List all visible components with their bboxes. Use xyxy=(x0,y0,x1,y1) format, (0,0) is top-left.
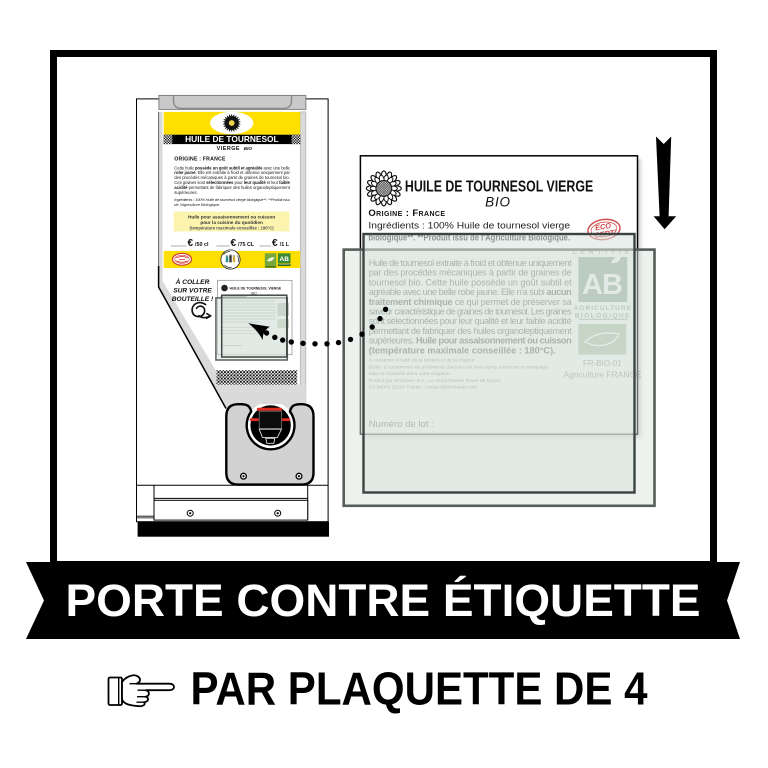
svg-text:/75 CL: /75 CL xyxy=(238,242,255,248)
svg-text:HUILE DE TOURNESOL VIERGE: HUILE DE TOURNESOL VIERGE xyxy=(405,179,593,196)
svg-text:Ingrédients : 100% Huile de to: Ingrédients : 100% Huile de tournesol vi… xyxy=(368,221,570,231)
svg-text:ORIGINE : FRANCE: ORIGINE : FRANCE xyxy=(174,157,226,163)
svg-text:de l'Agriculture Biologique.: de l'Agriculture Biologique. xyxy=(174,202,220,207)
svg-text:AB: AB xyxy=(280,256,290,263)
svg-text:/1 L: /1 L xyxy=(280,242,290,248)
svg-text:VIERGE: VIERGE xyxy=(217,146,240,152)
svg-text:Huile pour assaisonnement ou c: Huile pour assaisonnement ou cuisson xyxy=(188,215,275,220)
svg-text:supérieures.: supérieures. xyxy=(174,190,197,195)
svg-text:Origine : France: Origine : France xyxy=(368,208,445,219)
svg-text:BOUTEILLE !: BOUTEILLE ! xyxy=(172,296,214,303)
svg-text:SUR VOTRE: SUR VOTRE xyxy=(173,287,212,294)
svg-text:PAR PLAQUETTE DE 4: PAR PLAQUETTE DE 4 xyxy=(191,663,648,715)
svg-text:(température maximale conseill: (température maximale conseillée : 180°C… xyxy=(190,225,275,230)
svg-text:HUILE DE TOURNESOL VIERGE: HUILE DE TOURNESOL VIERGE xyxy=(230,286,282,290)
svg-text:BIO: BIO xyxy=(244,146,253,151)
svg-text:À COLLER: À COLLER xyxy=(175,277,210,286)
svg-text:/50 cl: /50 cl xyxy=(195,242,209,248)
svg-text:BIO: BIO xyxy=(485,195,511,210)
svg-text:€: € xyxy=(188,238,194,249)
svg-text:PORTE CONTRE ÉTIQUETTE: PORTE CONTRE ÉTIQUETTE xyxy=(66,575,701,626)
svg-text:€: € xyxy=(231,238,237,249)
svg-text:€: € xyxy=(272,238,278,249)
svg-text:HUILE DE TOURNESOL: HUILE DE TOURNESOL xyxy=(185,135,279,144)
